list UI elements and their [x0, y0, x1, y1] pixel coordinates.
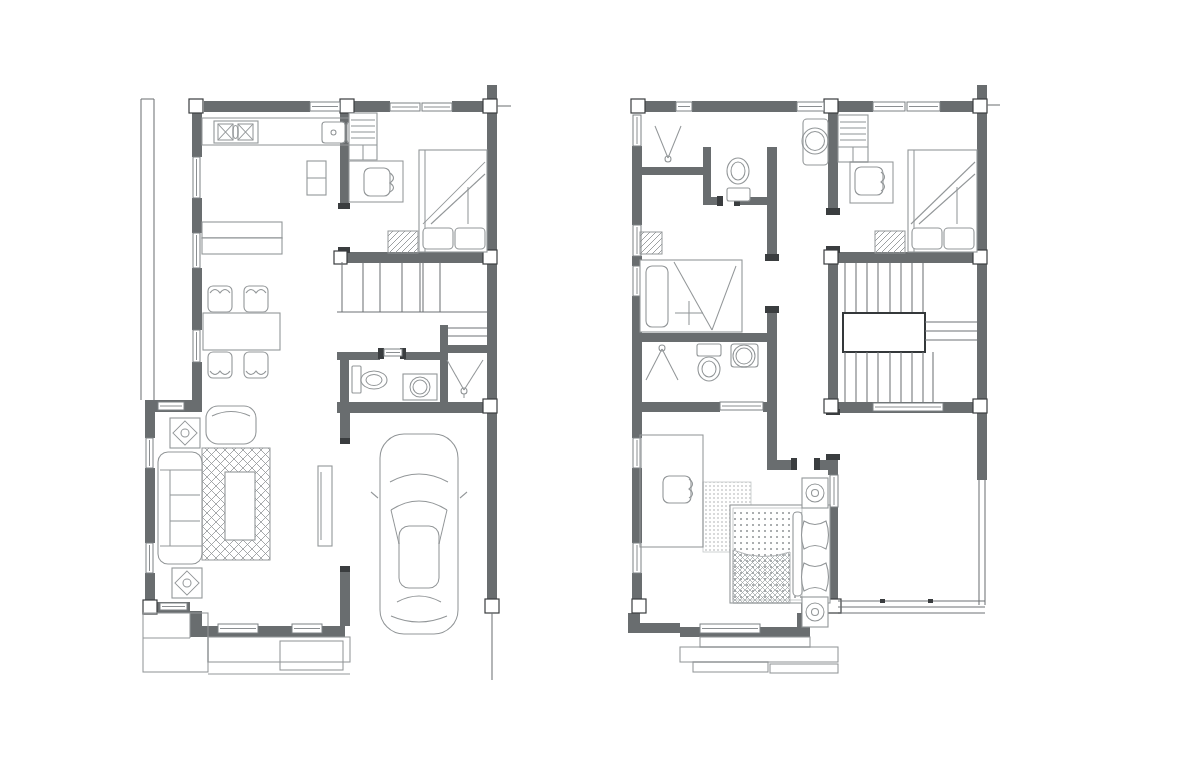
stair-wall	[828, 264, 838, 402]
nightstand	[640, 232, 662, 254]
washbasin-counter	[403, 374, 437, 400]
desk-chair	[663, 476, 691, 503]
pillow	[912, 228, 942, 249]
side-table	[170, 418, 200, 448]
column	[973, 99, 987, 113]
door-jamb	[717, 196, 723, 206]
kitchen-sink	[322, 122, 345, 143]
left-wall	[145, 468, 155, 543]
column	[824, 399, 838, 413]
dining-chair	[244, 286, 268, 312]
right-wall	[977, 264, 987, 399]
pillow	[423, 228, 453, 249]
left-wall	[192, 268, 202, 330]
column	[973, 399, 987, 413]
hall-wall	[767, 460, 793, 470]
desk-chair	[855, 167, 883, 195]
top-wall	[204, 101, 310, 112]
desk-chair	[364, 168, 390, 196]
top-wall	[838, 101, 873, 112]
column	[483, 399, 497, 413]
dining-chair	[208, 352, 232, 378]
right-wall	[977, 413, 987, 480]
bolster	[793, 512, 802, 596]
bath-wall	[763, 402, 777, 412]
dining-chair	[244, 352, 268, 378]
railing-post	[928, 599, 933, 603]
floor-plan-page	[0, 0, 1200, 768]
tv-console	[318, 466, 332, 546]
mid-wall	[638, 333, 777, 342]
column	[143, 600, 157, 614]
door-jamb	[765, 306, 779, 313]
door-jamb	[765, 254, 779, 261]
stair-wall	[337, 252, 483, 263]
door-jamb	[826, 208, 840, 215]
hall-wall	[767, 412, 777, 460]
door-jamb	[340, 566, 350, 572]
top-wall	[645, 101, 676, 112]
top-wall	[692, 101, 797, 112]
door-jamb	[378, 348, 384, 359]
right-wall	[487, 413, 497, 599]
dining-chair	[208, 286, 232, 312]
hall-wall	[820, 460, 838, 470]
bottom-wall	[190, 611, 202, 637]
wc-wall	[703, 197, 717, 205]
right-wall	[977, 113, 987, 250]
column	[632, 599, 646, 613]
stair-wall	[838, 252, 973, 263]
pillow	[802, 521, 829, 549]
bath-wall	[404, 352, 440, 360]
side-table	[172, 568, 202, 598]
hall-wall	[828, 113, 838, 208]
bottom-wall	[628, 613, 640, 633]
toilet-tank	[352, 366, 361, 393]
door-jamb	[826, 454, 840, 460]
understair-wall	[440, 345, 487, 353]
coffee-table	[225, 472, 255, 540]
column	[189, 99, 203, 113]
throw-blanket	[733, 550, 790, 603]
paper-background	[0, 0, 1200, 768]
left-wall	[192, 112, 202, 157]
toilet-tank	[697, 344, 721, 356]
left-wall	[192, 198, 202, 233]
left-wall	[145, 412, 155, 438]
pillow	[455, 228, 485, 249]
left-wall	[632, 146, 642, 225]
bottom-wall	[640, 623, 680, 633]
kitchen-island	[202, 238, 282, 254]
nightstand	[388, 231, 418, 253]
kitchen-island	[202, 222, 282, 238]
door-jamb	[814, 458, 820, 470]
bath-wall	[636, 402, 720, 412]
door-jamb	[340, 438, 350, 444]
left-wall	[632, 573, 642, 599]
top-wall	[354, 101, 390, 112]
garage-wall	[340, 412, 350, 440]
dining-table	[203, 313, 280, 350]
sofa	[158, 452, 202, 564]
pillow	[944, 228, 974, 249]
left-wall	[145, 573, 155, 602]
column	[824, 250, 838, 264]
right-wall	[487, 264, 497, 399]
wc-wall	[703, 147, 711, 205]
left-wall	[192, 362, 202, 402]
column	[340, 99, 354, 113]
door-jamb	[338, 203, 350, 209]
stair-void	[843, 313, 925, 352]
bath-wall	[340, 352, 349, 412]
column	[334, 251, 347, 264]
nightstand	[875, 231, 905, 253]
garage-wall	[340, 572, 350, 626]
column	[485, 599, 499, 613]
column	[631, 99, 645, 113]
bath-wall	[337, 402, 487, 413]
pillow	[802, 563, 829, 591]
column	[824, 99, 838, 113]
top-wall	[940, 101, 973, 112]
door-jamb	[791, 458, 797, 470]
railing-post	[880, 599, 885, 603]
hall-wall	[767, 147, 777, 260]
toilet	[361, 371, 387, 389]
column	[483, 99, 497, 113]
right-wall	[487, 113, 497, 250]
top-wall	[452, 101, 483, 112]
toilet-tank	[727, 188, 750, 201]
pillow	[646, 266, 668, 327]
floor-plan-drawing	[0, 0, 1200, 768]
shower-wall	[642, 167, 703, 175]
